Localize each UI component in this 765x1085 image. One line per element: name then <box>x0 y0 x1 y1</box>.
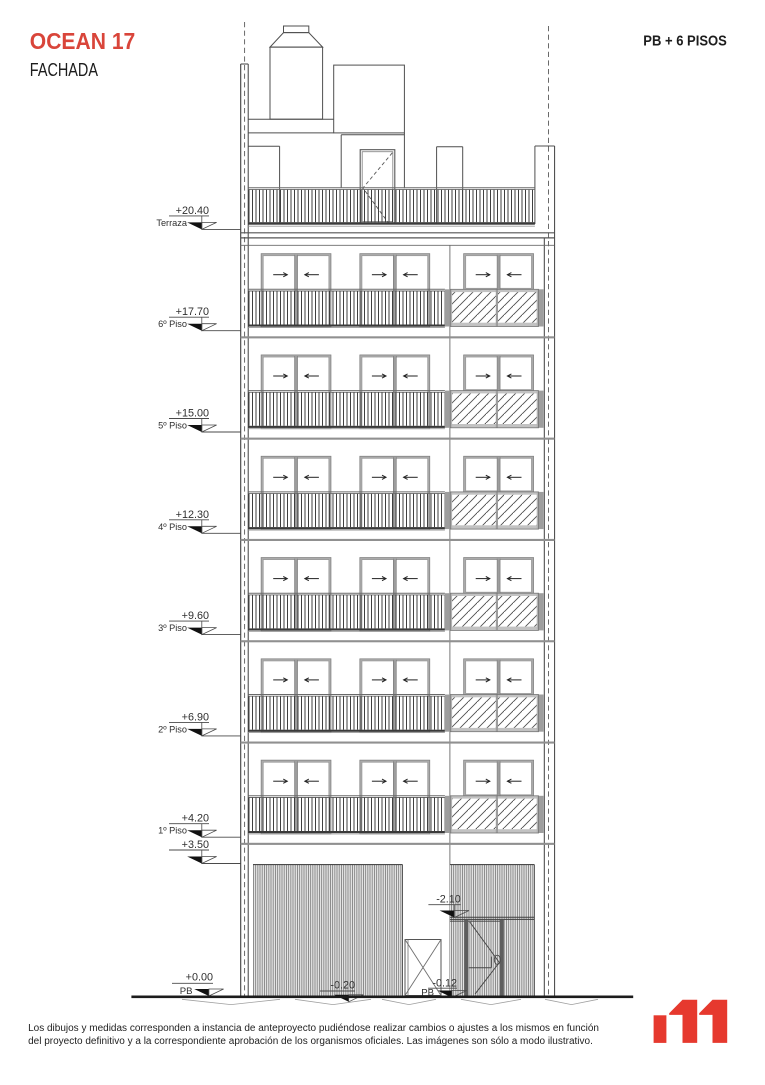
svg-text:OCEAN 17: OCEAN 17 <box>30 28 136 54</box>
svg-text:Terraza: Terraza <box>156 218 188 228</box>
svg-text:Los dibujos y medidas correspo: Los dibujos y medidas corresponden a ins… <box>28 1023 599 1034</box>
svg-text:-0.20: -0.20 <box>330 980 355 992</box>
svg-text:+9.60: +9.60 <box>182 610 209 622</box>
svg-text:6º Piso: 6º Piso <box>158 319 187 329</box>
svg-text:FACHADA: FACHADA <box>30 60 98 80</box>
svg-text:+6.90: +6.90 <box>182 711 209 723</box>
svg-text:-0.12: -0.12 <box>432 977 457 989</box>
svg-text:-2.10: -2.10 <box>436 893 461 905</box>
svg-text:3º Piso: 3º Piso <box>158 623 187 633</box>
svg-text:+17.70: +17.70 <box>176 306 209 318</box>
svg-text:+0.00: +0.00 <box>186 971 213 983</box>
svg-text:1º Piso: 1º Piso <box>158 826 187 836</box>
svg-text:2º Piso: 2º Piso <box>158 724 187 734</box>
svg-text:+15.00: +15.00 <box>176 408 209 420</box>
svg-text:4º Piso: 4º Piso <box>158 522 187 532</box>
svg-text:5º Piso: 5º Piso <box>158 421 187 431</box>
svg-text:+20.40: +20.40 <box>176 205 209 217</box>
svg-text:+3.50: +3.50 <box>182 839 209 851</box>
svg-text:PB + 6 PISOS: PB + 6 PISOS <box>643 32 727 49</box>
svg-text:+12.30: +12.30 <box>176 509 209 521</box>
svg-text:+4.20: +4.20 <box>182 813 209 825</box>
svg-text:del proyecto definitivo y a la: del proyecto definitivo y a la correspon… <box>28 1036 593 1047</box>
svg-text:PB: PB <box>180 986 193 997</box>
